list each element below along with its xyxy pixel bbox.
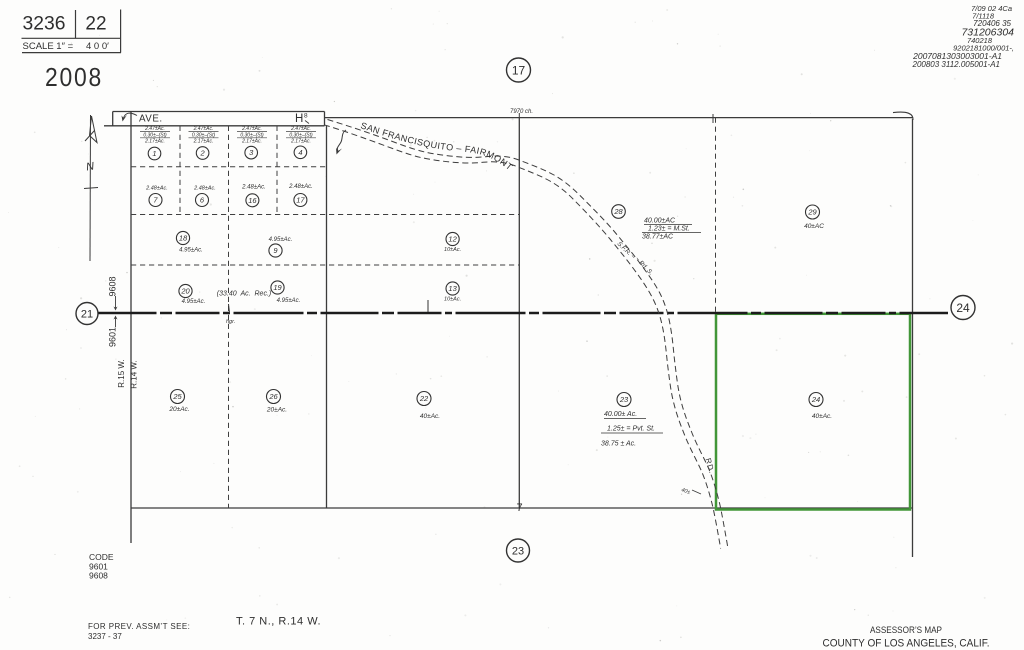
svg-text:2.48±Ac.: 2.48±Ac. (241, 185, 266, 191)
svg-text:20±Ac.: 20±Ac. (266, 407, 287, 414)
svg-text:24: 24 (811, 395, 820, 404)
svg-text:4.95±Ac.: 4.95±Ac. (179, 248, 203, 254)
svg-text:2.48±Ac.: 2.48±Ac. (145, 186, 168, 192)
svg-text:4.95±Ac.: 4.95±Ac. (269, 237, 293, 243)
svg-text:19: 19 (273, 283, 282, 292)
svg-text:R.15 W.: R.15 W. (117, 359, 126, 387)
svg-text:10±Ac.: 10±Ac. (444, 297, 461, 303)
svg-text:9608: 9608 (108, 276, 118, 296)
svg-text:SCALE 1″ =: SCALE 1″ = (23, 41, 74, 52)
svg-text:21: 21 (81, 309, 93, 321)
svg-text:4: 4 (298, 148, 302, 157)
svg-text:40.00± Ac.: 40.00± Ac. (604, 411, 637, 418)
svg-text:10±Ac.: 10±Ac. (444, 247, 461, 253)
svg-text:2008: 2008 (45, 62, 103, 92)
svg-text:2.47±Ac.: 2.47±Ac. (144, 126, 165, 132)
svg-text:23: 23 (512, 546, 524, 558)
svg-text:17: 17 (512, 64, 526, 78)
svg-text:4 0 0′: 4 0 0′ (86, 41, 109, 52)
svg-text:H: H (295, 113, 303, 125)
svg-text:17: 17 (296, 196, 305, 205)
svg-text:40±AC: 40±AC (804, 223, 824, 230)
svg-text:40±Ac.: 40±Ac. (420, 413, 440, 420)
svg-text:4.95±Ac.: 4.95±Ac. (182, 299, 206, 305)
svg-text:2.48±Ac.: 2.48±Ac. (193, 186, 216, 192)
svg-text:4.95±Ac.: 4.95±Ac. (277, 298, 301, 304)
svg-text:18: 18 (179, 234, 188, 243)
svg-text:16: 16 (248, 196, 257, 205)
svg-text:2: 2 (200, 149, 206, 158)
svg-text:2.48±Ac.: 2.48±Ac. (288, 184, 313, 190)
svg-text:40±Ac.: 40±Ac. (812, 413, 832, 420)
svg-text:22: 22 (419, 394, 429, 403)
svg-text:9601: 9601 (108, 327, 118, 347)
svg-text:CODE: CODE (89, 552, 114, 562)
svg-text:20: 20 (180, 287, 190, 296)
svg-text:20±Ac.: 20±Ac. (168, 406, 189, 413)
svg-text:1.25± = Pvt. St.: 1.25± = Pvt. St. (607, 426, 655, 433)
svg-text:1.23± = M.St.: 1.23± = M.St. (648, 226, 690, 233)
svg-text:ASSESSOR’S MAP: ASSESSOR’S MAP (870, 625, 942, 636)
svg-text:200803 3112.005001-A1: 200803 3112.005001-A1 (912, 60, 1001, 69)
svg-text:26: 26 (268, 392, 278, 401)
svg-text:23: 23 (619, 395, 629, 404)
svg-text:29: 29 (807, 208, 817, 217)
svg-text:R.14 W.: R.14 W. (130, 360, 139, 388)
svg-text:28: 28 (613, 207, 623, 216)
svg-text:7970 ch.: 7970 ch. (510, 109, 533, 115)
svg-text:COUNTY OF LOS ANGELES, CALIF.: COUNTY OF LOS ANGELES, CALIF. (823, 638, 990, 650)
svg-text:FOR PREV. ASSM’T SEE:: FOR PREV. ASSM’T SEE: (88, 622, 190, 631)
svg-text:8: 8 (304, 113, 308, 120)
svg-text:1: 1 (152, 149, 156, 158)
svg-text:3237 - 37: 3237 - 37 (88, 632, 122, 641)
svg-text:2.17±Ac.: 2.17±Ac. (144, 138, 165, 144)
svg-text:40.00±AC: 40.00±AC (644, 218, 676, 225)
svg-text:12: 12 (448, 235, 457, 244)
svg-text:13: 13 (448, 284, 457, 293)
svg-text:hgr.: hgr. (226, 319, 235, 325)
svg-text:24: 24 (956, 301, 970, 315)
svg-text:22: 22 (85, 14, 106, 35)
svg-text:7: 7 (517, 502, 523, 514)
svg-text:AVE.: AVE. (139, 114, 163, 125)
svg-text:T. 7 N., R.14 W.: T. 7 N., R.14 W. (236, 616, 321, 628)
svg-text:(33.40 Ac. Rec.): (33.40 Ac. Rec.) (217, 291, 271, 298)
svg-text:25: 25 (172, 392, 182, 401)
svg-text:38.75 ± Ac.: 38.75 ± Ac. (601, 441, 636, 448)
svg-text:3236: 3236 (23, 14, 66, 35)
svg-text:9608: 9608 (89, 571, 108, 581)
svg-text:38.77±AC: 38.77±AC (642, 234, 674, 241)
